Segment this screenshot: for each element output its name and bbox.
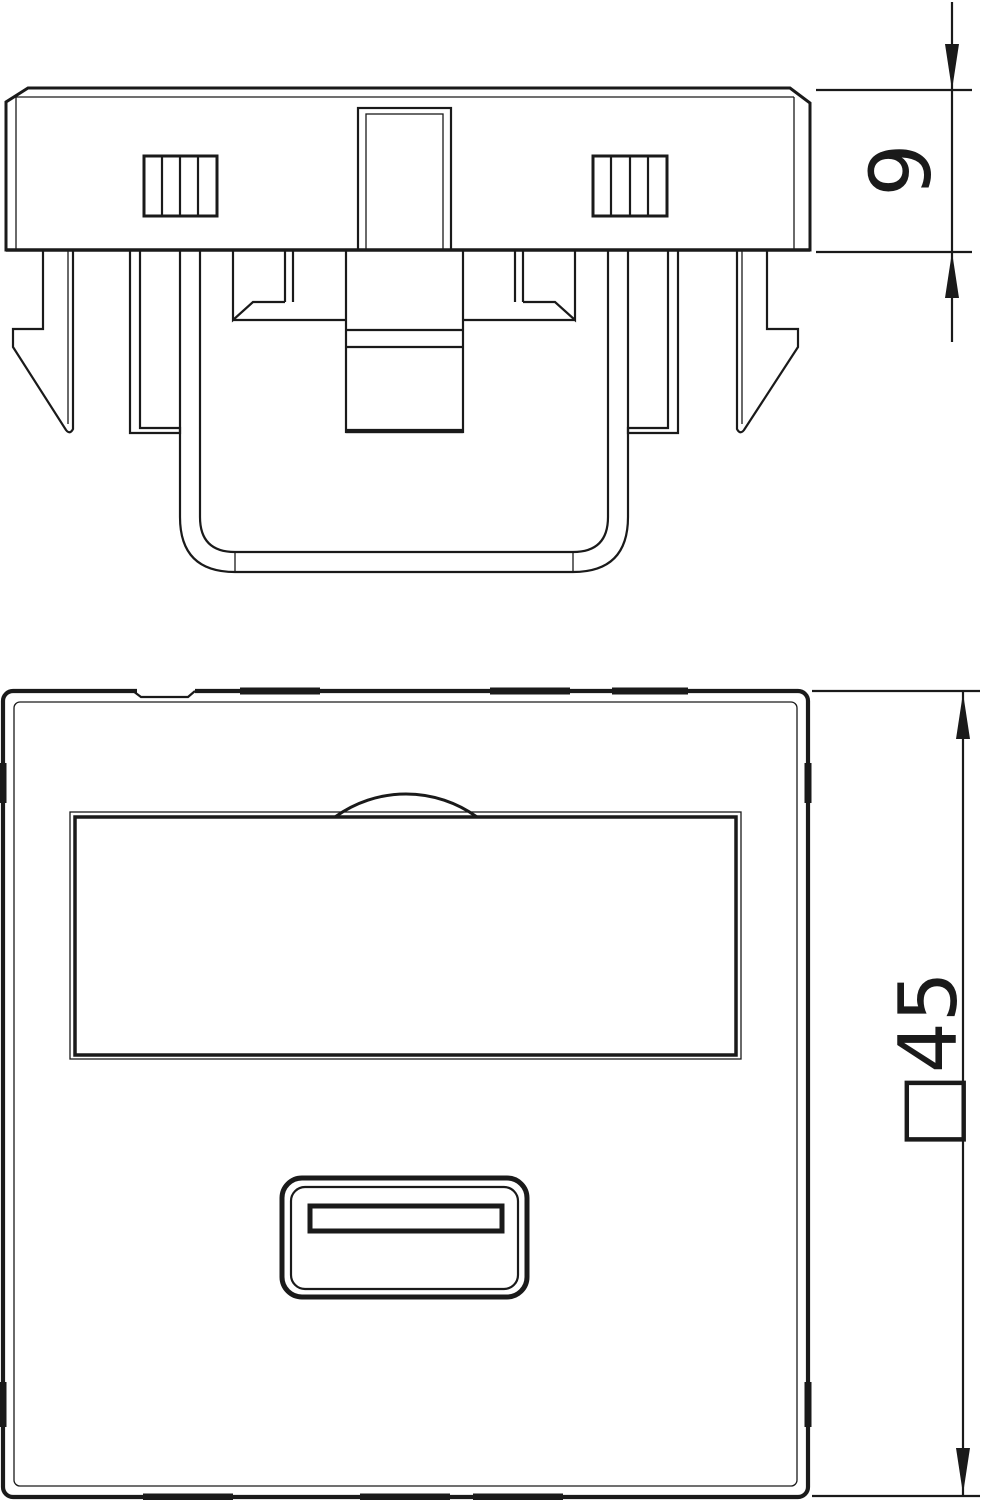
top-edge-recess bbox=[133, 685, 195, 697]
snap-foot-right bbox=[737, 250, 798, 432]
arrowhead-down-icon bbox=[945, 44, 959, 90]
arrowhead-up-icon bbox=[945, 252, 959, 298]
support-leg-right bbox=[628, 250, 678, 433]
usb-a-port bbox=[282, 1178, 527, 1297]
center-latch-tab bbox=[358, 108, 451, 250]
side-view bbox=[6, 88, 810, 572]
finger-recess-arc bbox=[335, 794, 477, 817]
front-view bbox=[3, 685, 808, 1497]
faceplate-inner-line bbox=[14, 702, 797, 1486]
snap-foot-left bbox=[13, 250, 73, 432]
usb-contact-slot bbox=[310, 1206, 502, 1231]
dimension-45: □45 bbox=[812, 691, 980, 1496]
support-leg-left bbox=[130, 250, 180, 433]
ledge-right bbox=[463, 250, 575, 320]
ledge-left bbox=[233, 250, 346, 320]
dimension-9: 9 bbox=[816, 2, 972, 342]
technical-drawing-page: 9 bbox=[0, 0, 983, 1500]
plate-outline bbox=[6, 88, 810, 250]
usb-port-outline bbox=[282, 1178, 527, 1297]
arrowhead-down-icon bbox=[956, 1448, 970, 1494]
center-pusher-block bbox=[346, 250, 463, 432]
dimension-45-label: □45 bbox=[882, 971, 975, 1148]
arrowhead-up-icon bbox=[956, 693, 970, 739]
label-field bbox=[70, 794, 741, 1059]
dimension-9-label: 9 bbox=[852, 143, 950, 196]
mounting-strap bbox=[180, 250, 628, 572]
usb-port-inner-line bbox=[291, 1187, 518, 1289]
grip-pad-left bbox=[144, 156, 217, 216]
drawing-canvas: 9 bbox=[0, 0, 983, 1500]
grip-pad-right bbox=[593, 156, 667, 216]
